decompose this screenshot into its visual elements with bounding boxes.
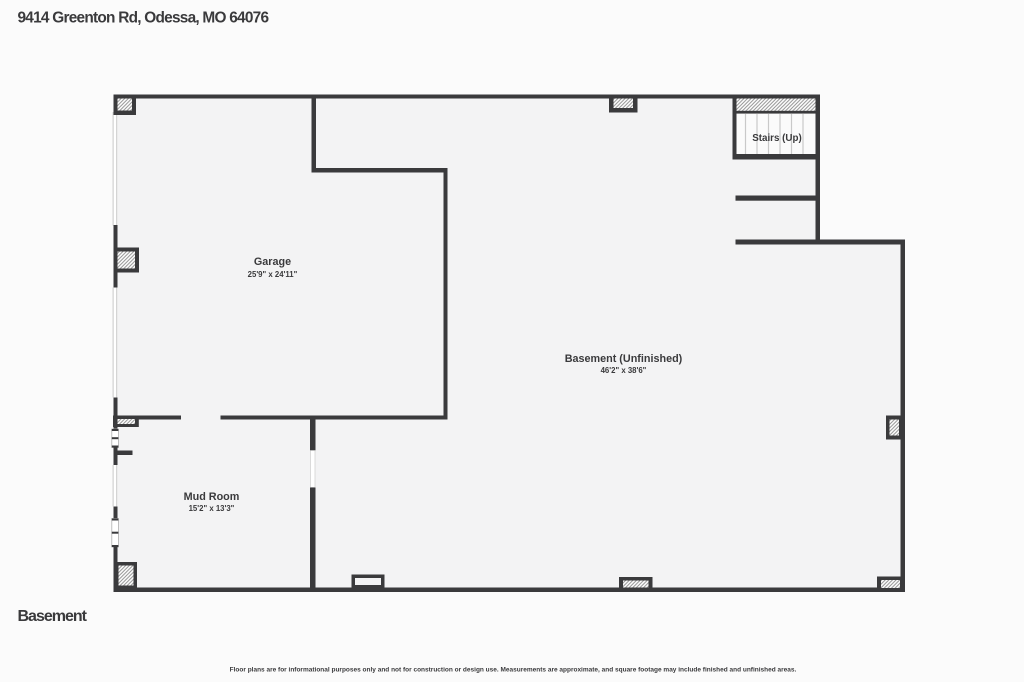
- svg-text:25'9" x 24'11": 25'9" x 24'11": [248, 270, 298, 279]
- svg-text:9414 Greenton Rd, Odessa, MO 6: 9414 Greenton Rd, Odessa, MO 64076: [18, 9, 269, 26]
- svg-text:Stairs (Up): Stairs (Up): [752, 133, 802, 144]
- svg-text:Basement (Unfinished): Basement (Unfinished): [565, 353, 683, 365]
- svg-text:Floor plans are for informatio: Floor plans are for informational purpos…: [230, 667, 797, 674]
- svg-text:Basement: Basement: [18, 608, 88, 625]
- svg-text:46'2" x 38'6": 46'2" x 38'6": [601, 366, 647, 375]
- svg-text:Mud Room: Mud Room: [184, 491, 240, 503]
- svg-text:15'2" x 13'3": 15'2" x 13'3": [189, 504, 235, 513]
- svg-text:Garage: Garage: [254, 256, 291, 268]
